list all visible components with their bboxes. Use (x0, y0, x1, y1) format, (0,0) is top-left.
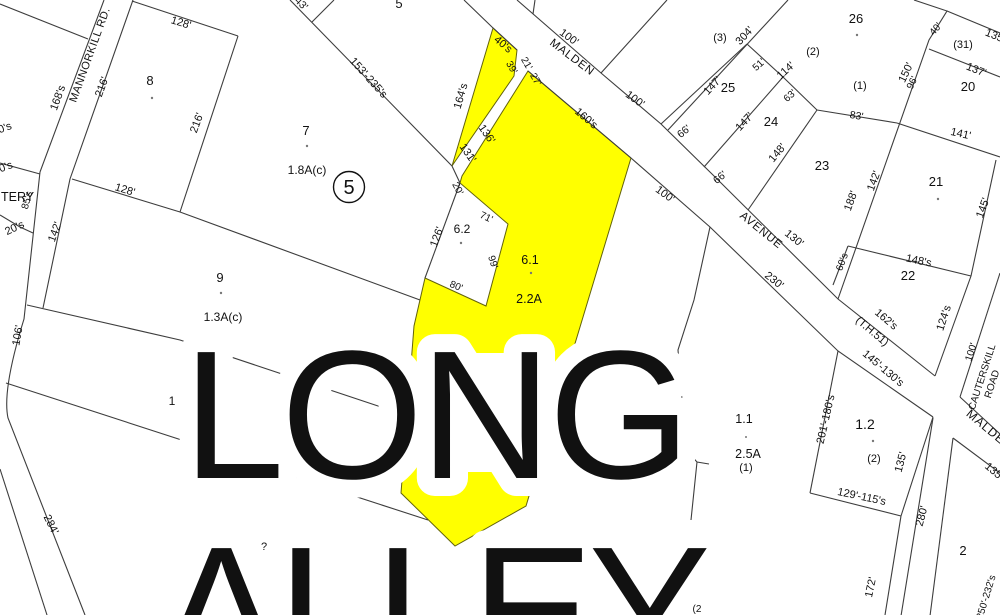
svg-text:23: 23 (815, 158, 829, 173)
svg-text:5: 5 (395, 0, 402, 11)
svg-text:(1): (1) (739, 462, 752, 474)
svg-text:2.2A: 2.2A (516, 292, 542, 306)
svg-text:(2): (2) (867, 453, 880, 465)
svg-text:2.5A: 2.5A (735, 447, 761, 461)
svg-text:(3): (3) (713, 32, 726, 44)
svg-text:8: 8 (146, 73, 153, 88)
svg-text:21: 21 (929, 174, 943, 189)
svg-text:(2): (2) (806, 46, 819, 58)
svg-text:5: 5 (343, 177, 354, 199)
svg-text:24: 24 (764, 114, 778, 129)
svg-text:2: 2 (959, 543, 966, 558)
svg-text:(1): (1) (853, 80, 866, 92)
svg-text:LONG: LONG (183, 312, 688, 517)
svg-text:83': 83' (849, 109, 864, 123)
svg-text:6.2: 6.2 (454, 222, 471, 236)
svg-text:25: 25 (721, 80, 735, 95)
svg-text:(31): (31) (953, 39, 973, 51)
svg-text:6.1: 6.1 (521, 253, 538, 267)
svg-text:26: 26 (849, 11, 863, 26)
svg-text:9: 9 (216, 270, 223, 285)
svg-text:1.2: 1.2 (855, 416, 875, 432)
svg-text:22: 22 (901, 268, 915, 283)
svg-text:ALLEY: ALLEY (160, 508, 708, 615)
svg-text:7: 7 (302, 123, 309, 138)
svg-text:1.1: 1.1 (735, 412, 752, 426)
svg-text:20: 20 (961, 79, 975, 94)
svg-text:1: 1 (169, 394, 176, 408)
svg-text:1.8A(c): 1.8A(c) (288, 163, 327, 177)
